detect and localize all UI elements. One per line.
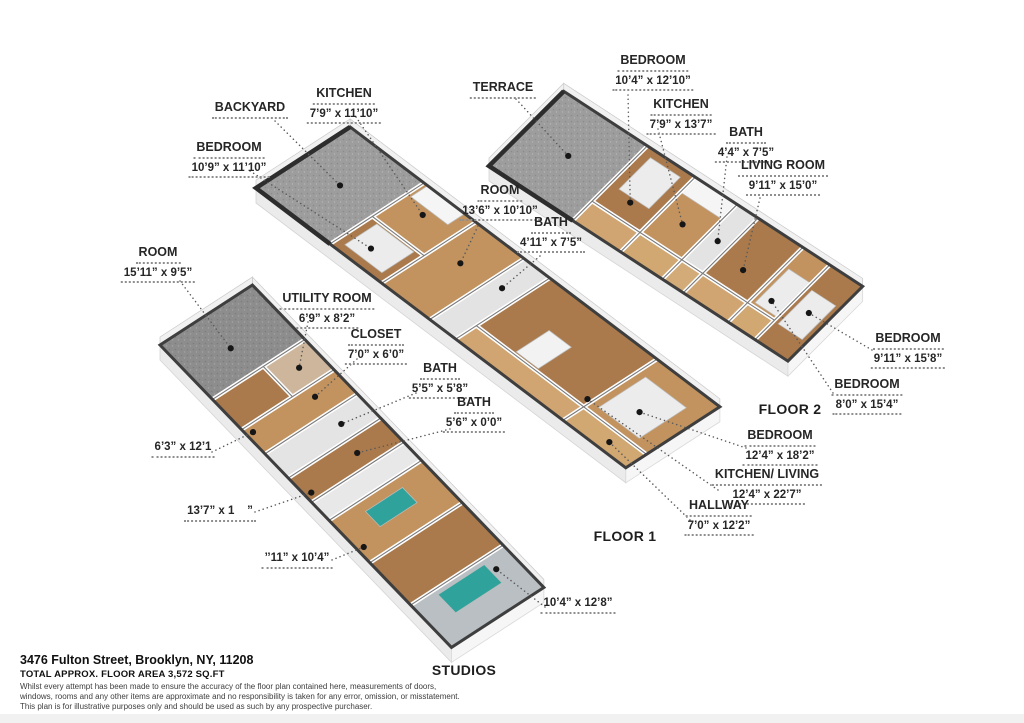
label-floor2-kitchen: KITCHEN7’9” x 13’7” — [647, 98, 716, 135]
footer-address: 3476 Fulton Street, Brooklyn, NY, 11208 — [20, 653, 253, 667]
label-studios-bath-2: BATH5’6” x 0’0” — [443, 396, 505, 433]
floorplan-page: BEDROOM10’4” x 12’10” TERRACE KITCHEN7’9… — [0, 0, 1024, 723]
label-floor1-bedroom-1: BEDROOM10’9” x 11’10” — [189, 141, 270, 178]
footer-bar — [0, 714, 1024, 723]
title-studios: STUDIOS — [432, 662, 496, 678]
label-floor2-bedroom-2: BEDROOM9’11” x 15’8” — [871, 332, 945, 369]
footer-disclaimer-line-3: This plan is for illustrative purposes o… — [20, 702, 372, 712]
label-studios-bath-1: BATH5’5” x 5’8” — [409, 362, 471, 399]
title-floor1: FLOOR 1 — [594, 528, 657, 544]
label-floor1-hallway: HALLWAY7’0” x 12’2” — [685, 499, 754, 536]
label-studios-dim-4: 10’4” x 12’8” — [540, 597, 615, 614]
label-studios-room: ROOM15’11” x 9’5” — [121, 246, 195, 283]
label-floor2-bedroom-1: BEDROOM10’4” x 12’10” — [612, 54, 693, 91]
footer-total-area: TOTAL APPROX. FLOOR AREA 3,572 SQ.FT — [20, 669, 225, 680]
footer-disclaimer-line-2: windows, rooms and any other items are a… — [20, 692, 460, 702]
label-studios-dim-1: 6’3” x 12’1 — [152, 441, 215, 458]
footer-disclaimer-line-1: Whilst every attempt has been made to en… — [20, 682, 436, 692]
title-floor2: FLOOR 2 — [759, 401, 822, 417]
label-studios-dim-2: 13’7” x 1 ” — [184, 505, 256, 522]
label-floor1-backyard: BACKYARD — [212, 101, 288, 119]
label-floor1-bath: BATH4’11” x 7’5” — [517, 216, 585, 253]
label-floor1-kitchen: KITCHEN7’9” x 11’10” — [307, 87, 381, 124]
label-studios-utility-room: UTILITY ROOM6’9” x 8’2” — [279, 292, 374, 329]
label-studios-closet: CLOSET7’0” x 6’0” — [345, 328, 407, 365]
label-floor2-living-room: LIVING ROOM9’11” x 15’0” — [738, 159, 828, 196]
label-floor2-terrace: TERRACE — [470, 81, 536, 99]
label-floor2-bedroom-3: BEDROOM8’0” x 15’4” — [831, 378, 902, 415]
label-studios-dim-3: ’’11” x 10’4” — [262, 552, 333, 569]
label-floor1-bedroom-2: BEDROOM12’4” x 18’2” — [742, 429, 817, 466]
